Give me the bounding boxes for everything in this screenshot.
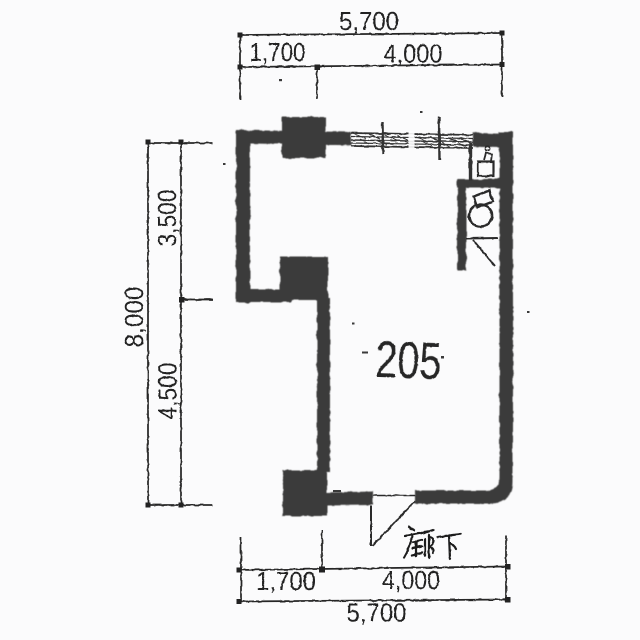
svg-text:1,700: 1,700 <box>250 37 306 67</box>
svg-text:1,700: 1,700 <box>256 566 316 596</box>
svg-text:5,700: 5,700 <box>347 598 407 628</box>
svg-text:4,500: 4,500 <box>153 363 183 420</box>
svg-text:3,500: 3,500 <box>152 190 182 247</box>
svg-text:4,000: 4,000 <box>384 39 443 69</box>
svg-text:4,000: 4,000 <box>382 565 440 595</box>
svg-text:8,000: 8,000 <box>119 287 149 348</box>
svg-text:205: 205 <box>374 331 442 391</box>
svg-text:5,700: 5,700 <box>339 6 399 36</box>
